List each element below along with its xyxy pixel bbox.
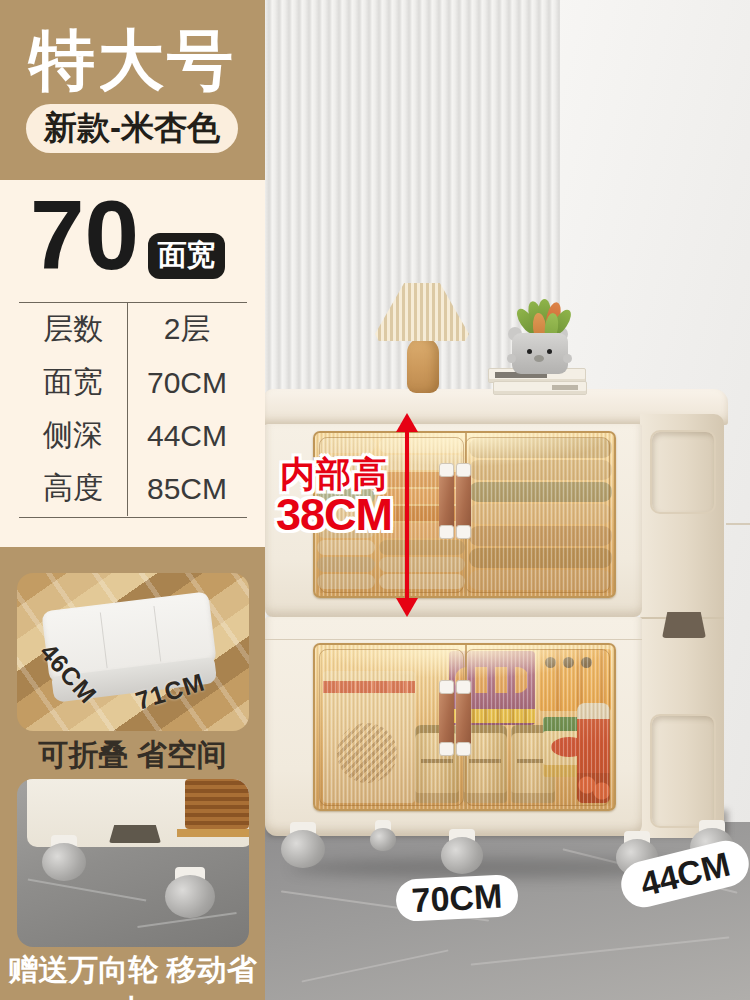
spec-table: 层数 2层 面宽 70CM 侧深 44CM 高度 85CM — [19, 302, 247, 518]
internal-height-label: 内部高 — [264, 456, 404, 492]
spec-value: 85CM — [127, 462, 247, 515]
wood-shelf — [177, 829, 249, 837]
folded-box-photo: 46CM 71CM — [17, 573, 249, 731]
bear-eye — [547, 349, 552, 354]
handle-mount — [456, 463, 471, 477]
upper-door-handles — [439, 463, 473, 539]
lamp-base — [407, 337, 439, 393]
spec-label: 高度 — [19, 462, 127, 515]
caster-wheel — [281, 822, 325, 870]
spec-label: 侧深 — [19, 409, 127, 462]
handle-mount — [456, 525, 471, 539]
caster-wheel — [165, 867, 215, 921]
handle-mount — [439, 742, 454, 756]
side-recess — [650, 430, 716, 514]
right-door-outline — [465, 437, 610, 593]
wheels-caption: 赠送万向轮 移动省力 — [0, 950, 265, 1000]
width-number: 70 — [30, 186, 139, 284]
handle-strap — [439, 469, 454, 533]
caster-wheel — [441, 829, 483, 875]
handle-strap — [456, 686, 471, 750]
handle-mount — [439, 680, 454, 694]
fold-caption: 可折叠 省空间 — [0, 735, 265, 776]
wheels-photo — [17, 779, 249, 947]
internal-height-annotation: 内部高 38CM — [264, 456, 404, 538]
measure-arrow-down-icon — [396, 598, 418, 617]
spec-value: 2层 — [127, 303, 247, 356]
bear-arm — [507, 354, 516, 363]
unit-seam — [265, 639, 642, 640]
product-title: 特大号 — [0, 16, 265, 106]
product-image: 内部高 38CM 70CM 44CM 特大号 新款-米杏色 70 面宽 层数 2… — [0, 0, 750, 1000]
side-recess — [650, 714, 716, 828]
handle-mount — [439, 463, 454, 477]
spec-value: 44CM — [127, 409, 247, 462]
handle-mount — [439, 525, 454, 539]
caster-wheel — [370, 820, 396, 850]
width-badge: 面宽 — [148, 233, 225, 279]
cabinet-side-panel — [640, 414, 724, 838]
internal-height-value: 38CM — [264, 492, 404, 538]
wall-seam-line — [726, 523, 750, 525]
height-measure-arrow — [405, 430, 409, 600]
bear-eye — [527, 349, 532, 354]
variant-badge: 新款-米杏色 — [26, 104, 238, 153]
lower-door-handles — [439, 680, 473, 756]
handle-mount — [456, 742, 471, 756]
info-sidebar: 特大号 新款-米杏色 70 面宽 层数 2层 面宽 70CM 侧深 44CM 高… — [0, 0, 265, 1000]
handle-strap — [439, 686, 454, 750]
bear-arm — [563, 354, 572, 363]
bear-planter — [512, 333, 568, 374]
book — [493, 381, 587, 395]
spec-label: 层数 — [19, 303, 127, 356]
spec-table-divider — [127, 302, 128, 516]
handle-strap — [456, 469, 471, 533]
bottom-handle-notch — [109, 825, 161, 843]
right-door-outline — [465, 649, 610, 806]
width-dimension-pill: 70CM — [395, 874, 519, 922]
floor-vein — [471, 936, 730, 965]
rattan-basket — [185, 779, 249, 829]
spec-value: 70CM — [127, 356, 247, 409]
spec-label: 面宽 — [19, 356, 127, 409]
floor-vein — [301, 949, 448, 982]
spec-panel: 70 面宽 层数 2层 面宽 70CM 侧深 44CM 高度 85CM — [0, 180, 265, 547]
bear-snout — [534, 355, 544, 362]
caster-wheel — [42, 835, 86, 883]
side-handle-notch — [662, 612, 706, 638]
handle-mount — [456, 680, 471, 694]
